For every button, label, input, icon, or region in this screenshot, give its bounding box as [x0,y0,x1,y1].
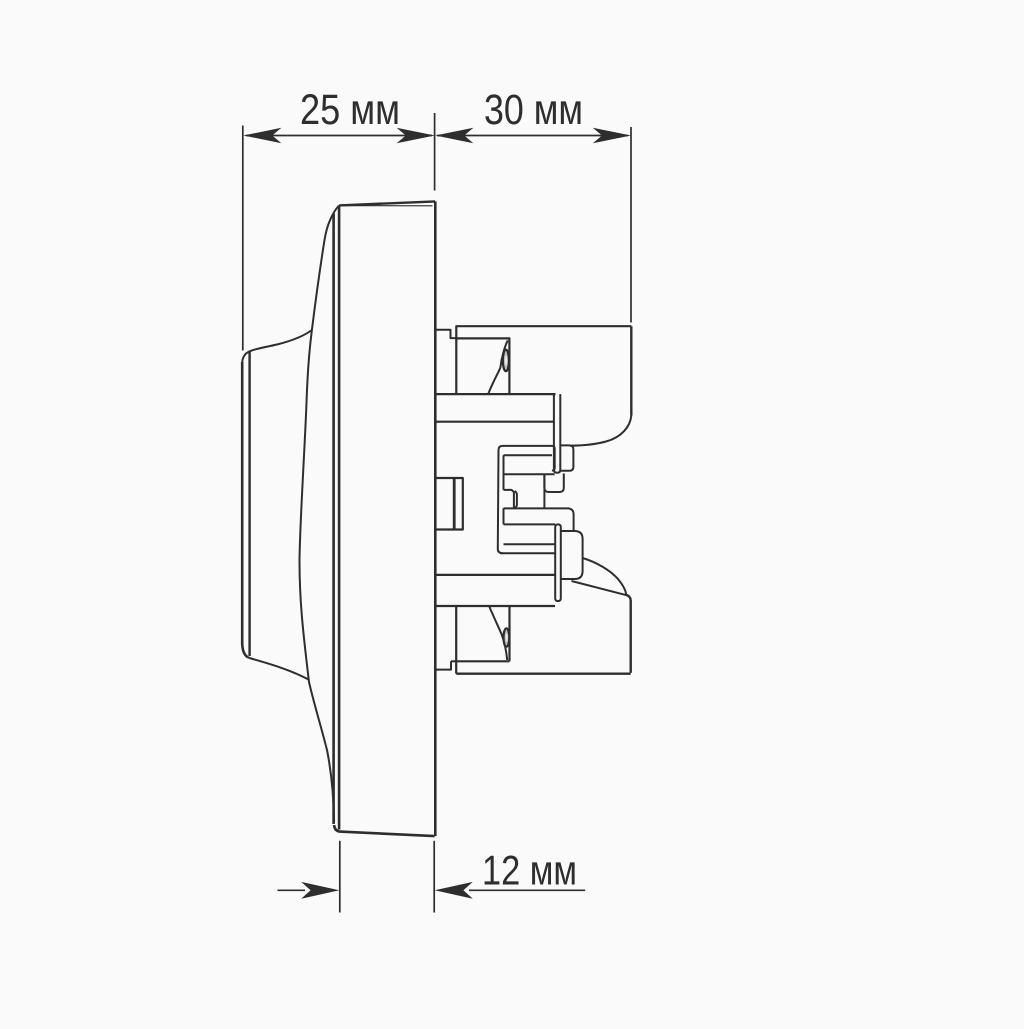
svg-text:30 мм: 30 мм [484,86,583,134]
svg-text:25 мм: 25 мм [300,86,400,134]
svg-text:12 мм: 12 мм [482,847,577,894]
